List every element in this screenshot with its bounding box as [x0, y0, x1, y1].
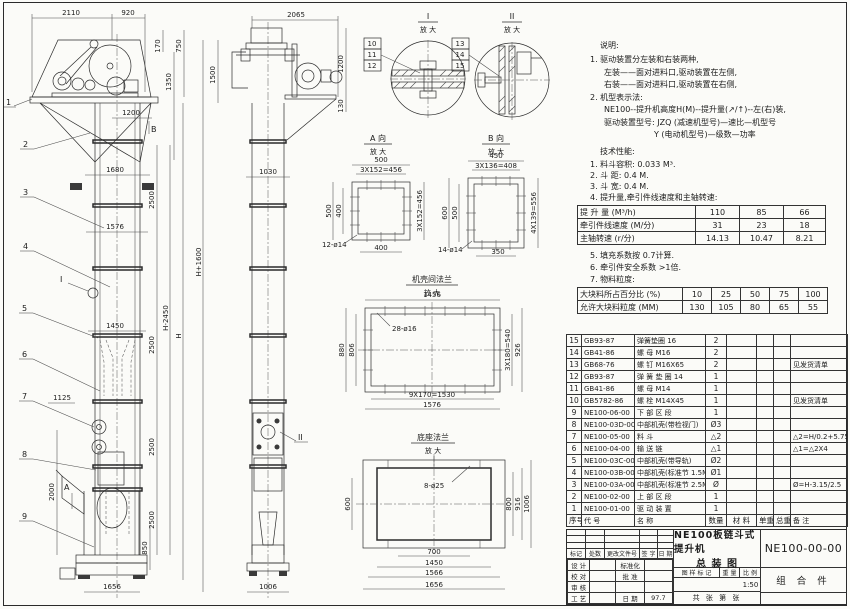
table-cell — [774, 419, 791, 431]
dim-1500: 1500 — [209, 66, 217, 84]
table-cell: 2 — [706, 347, 727, 359]
table-cell: 50 — [741, 288, 770, 301]
table-row: 提 升 量 (M³/h)1108566 — [578, 206, 826, 219]
table-cell — [727, 371, 757, 383]
dim-base-width: 1656 — [103, 583, 121, 591]
table-cell: 6 — [567, 443, 582, 455]
table-row: 序号代 号名 称数量材 料单重总重备 注 — [567, 515, 848, 527]
table-cell: 见发货清单 — [791, 395, 848, 407]
rev-col-mark: 标记 — [567, 549, 586, 558]
callout-9: 9 — [22, 512, 27, 521]
table-cell: 55 — [799, 301, 828, 314]
dim-section-1: 2500 — [148, 191, 156, 209]
view-a-dim-right: 3X152=456 — [416, 190, 424, 232]
table-cell: 名 称 — [635, 515, 706, 527]
title-block-right: NE100-00-00 组 合 件 — [761, 530, 846, 604]
scale-label: 比 例 — [740, 568, 760, 577]
table-cell: △2=H/0.2+5.75 — [791, 431, 848, 443]
detail-base-flange: 底座法兰 放 大 8-ø25 600 800 916 1006 700 1450… — [344, 432, 531, 589]
table-cell: 中部机壳(标准节 1.5M,1M) — [635, 467, 706, 479]
table-cell — [791, 335, 848, 347]
table-cell: 31 — [696, 219, 740, 232]
table-row: 12GB93-87弹 簧 垫 圈 141 — [567, 371, 848, 383]
table-cell: 65 — [770, 301, 799, 314]
rev-col-doc: 更改文件号 — [605, 549, 640, 558]
table-row: 13GB68-76螺 钉 M16X652见发货清单 — [567, 359, 848, 371]
tech-line: 1. 料斗容积: 0.033 M³. — [590, 159, 717, 170]
table-cell: NE100-05-00 — [582, 431, 635, 443]
casing-flange-dim-bottom2: 1576 — [423, 401, 441, 409]
table-row: 6NE100-04-00输 送 链△1△1=△2X4 — [567, 443, 848, 455]
table-cell: Ø3 — [706, 419, 727, 431]
table-cell — [774, 431, 791, 443]
table-cell: GB41-86 — [582, 347, 635, 359]
table-cell — [774, 359, 791, 371]
casing-flange-dim-bottom: 9X170=1530 — [409, 391, 455, 399]
dim-side-base-width: 1006 — [259, 583, 277, 591]
dim-flange1: 1680 — [106, 166, 124, 174]
note-line: 2. 机型表示法: — [590, 92, 786, 105]
rev-col-date: 日 期 — [658, 549, 673, 558]
table-cell: 批 准 — [616, 570, 644, 581]
base-flange-dim-bottom2: 1450 — [425, 559, 443, 567]
table-row: 工 艺日 期97.7 — [568, 592, 673, 603]
table-cell — [757, 347, 774, 359]
view-a-dim-top2: 3X152=456 — [360, 166, 402, 174]
table-cell — [727, 455, 757, 467]
table-cell: 中部机壳(带检视门) — [635, 419, 706, 431]
table-cell — [757, 491, 774, 503]
drawing-title: NE100板链斗式提升机 — [674, 527, 760, 555]
table-row: 大块料所占百分比 (%)10255075100 — [578, 288, 828, 301]
table-cell: 见发货清单 — [791, 359, 848, 371]
table-cell — [727, 479, 757, 491]
base-flange-dim-bottom4: 1656 — [425, 581, 443, 589]
table-cell — [757, 371, 774, 383]
table-row: 3NE100-03A-00中部机壳(标准节 2.5M)ØØ=H-3.15/2.5 — [567, 479, 848, 491]
table-cell: NE100-04-00 — [582, 443, 635, 455]
tech-line: 4. 提升量,牵引件线速度和主轴转速: — [590, 192, 717, 203]
table-cell: △2 — [706, 431, 727, 443]
table-row: 10GB5782-86螺 栓 M14X451见发货清单 — [567, 395, 848, 407]
dim-1350: 1350 — [165, 73, 173, 91]
table-cell — [644, 559, 672, 570]
table-cell: 1 — [706, 395, 727, 407]
table-cell: 中部机壳(带导轨) — [635, 455, 706, 467]
table-cell: △1=△2X4 — [791, 443, 848, 455]
base-flange-dim-right3: 1006 — [523, 495, 531, 513]
casing-flange-holes: 28-ø16 — [392, 325, 417, 333]
tech-line: 3. 斗 宽: 0.4 M. — [590, 181, 717, 192]
table-cell — [774, 371, 791, 383]
tech-line: 5. 填充系数按 0.7计算. — [590, 250, 681, 262]
table-cell — [791, 455, 848, 467]
table-cell: 25 — [712, 288, 741, 301]
table-row: 牵引件线速度 (M/分)312318 — [578, 219, 826, 232]
drawing-canvas: 2110 920 170 750 1350 1500 1200 1680 157… — [0, 0, 565, 609]
dim-mid-width: 1450 — [106, 322, 124, 330]
table-cell: Ø1 — [706, 467, 727, 479]
table-cell — [774, 443, 791, 455]
table-cell: 标准化 — [616, 559, 644, 570]
note-line: 右装——面对进料口,驱动装置在右侧, — [604, 79, 786, 92]
table-cell: 设 计 — [568, 559, 590, 570]
table-cell — [757, 443, 774, 455]
table-cell: 螺 钉 M16X65 — [635, 359, 706, 371]
table-cell: 1 — [706, 407, 727, 419]
dim-750: 750 — [175, 39, 183, 52]
view-mark-b: B — [151, 125, 157, 134]
view-b-dim-right: 4X139=556 — [530, 192, 538, 234]
dim-section-2: 2500 — [148, 336, 156, 354]
table-cell: 材 料 — [727, 515, 757, 527]
detail-mark-i: I — [60, 275, 62, 284]
table-cell — [757, 407, 774, 419]
table-cell: 80 — [741, 301, 770, 314]
dim-feed-height: 2000 — [48, 483, 56, 501]
detail-i-callout-11: 11 — [368, 51, 377, 59]
table-cell — [757, 467, 774, 479]
table-cell — [774, 395, 791, 407]
table-cell — [727, 431, 757, 443]
detail-ii-callout-14: 14 — [456, 51, 465, 59]
dim-side-1200: 1200 — [337, 55, 345, 73]
table-cell: NE100-03D-00 — [582, 419, 635, 431]
table-cell — [727, 335, 757, 347]
table-cell: 97.7 — [644, 592, 672, 603]
casing-flange-dim-left: 880 — [338, 343, 346, 356]
dim-170: 170 — [154, 39, 162, 52]
table-cell — [774, 407, 791, 419]
table-cell — [590, 592, 616, 603]
assembly-type: 组 合 件 — [761, 568, 846, 593]
casing-flange-dim-left2: 806 — [348, 343, 356, 357]
capacity-table: 提 升 量 (M³/h)1108566牵引件线速度 (M/分)312318主轴转… — [577, 205, 826, 245]
detail-ii-label: II — [510, 12, 515, 21]
dim-head-width: 2110 — [62, 9, 80, 17]
table-cell: 下 部 区 段 — [635, 407, 706, 419]
detail-i: I 放 大 10 11 12 — [364, 12, 466, 118]
table-cell — [727, 503, 757, 515]
table-cell: 1 — [706, 491, 727, 503]
table-cell: NE100-01-00 — [582, 503, 635, 515]
dim-h-overall: H+1600 — [195, 248, 203, 277]
table-cell: NE100-03C-00 — [582, 455, 635, 467]
base-flange-dim-left: 600 — [344, 497, 352, 510]
table-cell — [791, 407, 848, 419]
table-cell: 审 核 — [568, 581, 590, 592]
tech-line: 7. 物料粒度: — [590, 274, 681, 286]
table-cell — [791, 503, 848, 515]
table-cell: 1 — [706, 503, 727, 515]
table-cell — [727, 419, 757, 431]
table-cell — [727, 491, 757, 503]
table-cell: NE100-02-00 — [582, 491, 635, 503]
table-row: 15GB93-87弹簧垫圈 162 — [567, 335, 848, 347]
table-cell: 14.13 — [696, 232, 740, 245]
table-cell: 10.47 — [740, 232, 784, 245]
view-b-dim-left: 600 — [441, 206, 449, 219]
note-line: Y (电动机型号)—级数—功率 — [654, 129, 786, 142]
table-cell: 75 — [770, 288, 799, 301]
table-cell — [590, 581, 616, 592]
table-cell — [774, 383, 791, 395]
sheet-count: 共 张 第 张 — [674, 592, 760, 604]
table-cell: 上 部 区 段 — [635, 491, 706, 503]
drawing-number: NE100-00-00 — [761, 530, 846, 568]
title-block: 标记 处数 更改文件号 签 字 日 期 设 计标准化校 对批 准审 核工 艺日 … — [566, 529, 847, 605]
view-b-label: B 向 — [488, 133, 504, 143]
rev-col-count: 处数 — [586, 549, 605, 558]
table-row: 审 核 — [568, 581, 673, 592]
table-cell — [774, 491, 791, 503]
view-b-dim-left2: 500 — [451, 206, 459, 219]
table-cell — [727, 443, 757, 455]
dim-h-mid: H-2450 — [162, 305, 170, 331]
base-flange-label: 底座法兰 — [417, 432, 449, 442]
lump-size-table: 大块料所占百分比 (%)10255075100允许大块料粒度 (MM)13010… — [577, 287, 828, 314]
table-row: 4NE100-03B-00中部机壳(标准节 1.5M,1M)Ø1 — [567, 467, 848, 479]
table-cell: GB5782-86 — [582, 395, 635, 407]
table-cell: 总重 — [774, 515, 791, 527]
side-elevation-view: II 2065 1200 130 1030 1006 — [232, 11, 346, 598]
callout-3: 3 — [23, 188, 28, 197]
table-cell — [757, 359, 774, 371]
table-cell: GB41-86 — [582, 383, 635, 395]
dim-flange2: 1576 — [106, 223, 124, 231]
detail-mark-ii: II — [298, 433, 303, 442]
table-cell — [757, 455, 774, 467]
base-flange-holes: 8-ø25 — [424, 482, 444, 490]
table-cell: 130 — [683, 301, 712, 314]
view-a-dim-left: 500 — [325, 204, 333, 217]
table-cell: 85 — [740, 206, 784, 219]
table-cell: GB93-87 — [582, 371, 635, 383]
table-cell: 105 — [712, 301, 741, 314]
table-cell: 工 艺 — [568, 592, 590, 603]
table-cell — [774, 335, 791, 347]
table-cell: 料 斗 — [635, 431, 706, 443]
table-cell: 8.21 — [784, 232, 826, 245]
table-cell — [757, 335, 774, 347]
dim-feed-width: 1125 — [53, 394, 71, 402]
table-cell: 14 — [567, 347, 582, 359]
table-cell — [727, 467, 757, 479]
view-b-dim-top: 450 — [489, 152, 502, 160]
table-cell: 主轴转速 (r/分) — [578, 232, 696, 245]
table-cell: 4 — [567, 467, 582, 479]
table-cell — [791, 467, 848, 479]
view-a-label: A 向 — [370, 133, 386, 143]
table-cell: 13 — [567, 359, 582, 371]
table-cell: 螺 母 M14 — [635, 383, 706, 395]
title-block-revision: 标记 处数 更改文件号 签 字 日 期 设 计标准化校 对批 准审 核工 艺日 … — [567, 530, 674, 604]
rev-col-sign: 签 字 — [640, 549, 658, 558]
dim-side-head-width: 2065 — [287, 11, 305, 19]
scale-value: 1:50 — [741, 581, 760, 589]
table-cell — [590, 559, 616, 570]
note-line: 左装——面对进料口,驱动装置在左侧, — [604, 67, 786, 80]
casing-flange-dim-right: 3X180=540 — [504, 329, 512, 371]
view-a-dim-bottom: 400 — [374, 244, 387, 252]
tech-title: 技术性能: — [600, 146, 635, 159]
view-a-dim-left2: 400 — [335, 204, 343, 217]
dim-col-width: 1200 — [122, 109, 140, 117]
base-flange-sub: 放 大 — [425, 446, 441, 455]
table-row: 校 对批 准 — [568, 570, 673, 581]
table-cell: 10 — [683, 288, 712, 301]
table-row: 主轴转速 (r/分)14.1310.478.21 — [578, 232, 826, 245]
detail-view-b: B 向 放 大 450 3X136=408 600 500 4X139=556 … — [438, 133, 538, 256]
detail-ii-sub: 放 大 — [504, 25, 520, 34]
note-line: 1. 驱动装置分左装和右装两种, — [590, 54, 786, 67]
table-cell: Ø2 — [706, 455, 727, 467]
table-cell: 66 — [784, 206, 826, 219]
detail-ii: II 放 大 13 14 15 — [452, 12, 550, 120]
table-cell: NE100-03B-00 — [582, 467, 635, 479]
table-cell: Ø=H-3.15/2.5 — [791, 479, 848, 491]
base-flange-dim-bottom: 700 — [427, 548, 440, 556]
table-cell — [727, 395, 757, 407]
dim-head-offset: 920 — [121, 9, 134, 17]
note-line: NE100--提升机高度H(M)--提升量(↗/↑)--左(右)装, — [604, 104, 786, 117]
table-cell: 12 — [567, 371, 582, 383]
view-mark-a: A — [64, 483, 70, 492]
dim-section-3: 2500 — [148, 438, 156, 456]
table-cell: 提 升 量 (M³/h) — [578, 206, 696, 219]
table-cell: 15 — [567, 335, 582, 347]
table-cell: 校 对 — [568, 570, 590, 581]
table-cell: 1 — [706, 371, 727, 383]
dim-section-4: 2500 — [148, 511, 156, 529]
table-row: 14GB41-86螺 母 M162 — [567, 347, 848, 359]
table-cell: 7 — [567, 431, 582, 443]
table-cell: 数量 — [706, 515, 727, 527]
base-flange-dim-bottom3: 1566 — [425, 569, 443, 577]
detail-i-callout-10: 10 — [368, 40, 377, 48]
drawing-sheet: 2110 920 170 750 1350 1500 1200 1680 157… — [0, 0, 850, 609]
table-cell: 备 注 — [791, 515, 848, 527]
table-cell — [791, 371, 848, 383]
view-b-dim-bottom: 350 — [491, 248, 504, 256]
table-cell — [757, 431, 774, 443]
detail-view-a: A 向 放 大 500 3X152=456 500 400 3X152=456 … — [322, 133, 424, 252]
table-row: 9NE100-06-00下 部 区 段1 — [567, 407, 848, 419]
table-row: 7NE100-05-00料 斗△2△2=H/0.2+5.75 — [567, 431, 848, 443]
table-cell: 中部机壳(标准节 2.5M) — [635, 479, 706, 491]
casing-flange-label: 机壳间法兰 — [412, 274, 452, 284]
table-cell: 大块料所占百分比 (%) — [578, 288, 683, 301]
weight-label: 重 量 — [720, 568, 740, 577]
callout-7: 7 — [22, 392, 27, 401]
table-cell: 1 — [567, 503, 582, 515]
title-block-roles: 设 计标准化校 对批 准审 核工 艺日 期97.7 — [567, 559, 673, 604]
table-cell — [727, 383, 757, 395]
table-cell — [774, 467, 791, 479]
table-cell: 2 — [706, 359, 727, 371]
table-cell: 11 — [567, 383, 582, 395]
tech-line: 6. 牵引件安全系数 >1倍. — [590, 262, 681, 274]
table-cell — [774, 455, 791, 467]
table-cell: 5 — [567, 455, 582, 467]
table-cell — [616, 581, 644, 592]
table-row: 11GB41-86螺 母 M141 — [567, 383, 848, 395]
table-cell: GB68-76 — [582, 359, 635, 371]
front-elevation-view: 2110 920 170 750 1350 1500 1200 1680 157… — [4, 9, 218, 598]
table-cell: Ø — [706, 479, 727, 491]
detail-i-callout-12: 12 — [368, 62, 377, 70]
view-a-dim-top: 500 — [374, 156, 387, 164]
table-cell — [774, 347, 791, 359]
table-row: 允许大块料粒度 (MM)130105806555 — [578, 301, 828, 314]
table-cell: 23 — [740, 219, 784, 232]
view-a-holes: 12-ø14 — [322, 241, 347, 249]
table-cell: 弹簧垫圈 16 — [635, 335, 706, 347]
table-cell — [644, 570, 672, 581]
table-cell — [757, 503, 774, 515]
tech-line: 2. 斗 距: 0.4 M. — [590, 170, 717, 181]
detail-ii-callout-13: 13 — [456, 40, 465, 48]
note-line: 驱动装置型号: JZQ (减速机型号)—速比—机型号 — [604, 117, 786, 130]
casing-flange-dim-top: 1456 — [423, 291, 441, 299]
table-cell: △1 — [706, 443, 727, 455]
table-cell: 100 — [799, 288, 828, 301]
table-cell: 允许大块料粒度 (MM) — [578, 301, 683, 314]
callout-2: 2 — [23, 140, 28, 149]
table-cell — [774, 503, 791, 515]
table-cell: 输 送 链 — [635, 443, 706, 455]
view-b-holes: 14-ø14 — [438, 246, 463, 254]
table-cell — [644, 581, 672, 592]
notes-title: 说明: — [600, 40, 619, 53]
view-a-sub: 放 大 — [370, 147, 386, 156]
detail-i-label: I — [427, 12, 429, 21]
dim-base-height: 850 — [141, 541, 149, 554]
table-cell: 2 — [567, 491, 582, 503]
detail-ii-callout-15: 15 — [456, 62, 465, 70]
table-cell: 牵引件线速度 (M/分) — [578, 219, 696, 232]
table-cell — [757, 419, 774, 431]
table-cell — [727, 359, 757, 371]
dim-side-col-width: 1030 — [259, 168, 277, 176]
table-cell — [757, 479, 774, 491]
table-cell — [791, 347, 848, 359]
table-cell — [727, 407, 757, 419]
table-cell: 弹 簧 垫 圈 14 — [635, 371, 706, 383]
table-cell: 110 — [696, 206, 740, 219]
casing-flange-dim-right2: 926 — [514, 343, 522, 357]
callout-6: 6 — [22, 350, 27, 359]
mark-label: 图 样 标 记 — [674, 568, 720, 577]
table-row: 8NE100-03D-00中部机壳(带检视门)Ø3 — [567, 419, 848, 431]
table-cell: 1 — [706, 383, 727, 395]
table-row: 5NE100-03C-00中部机壳(带导轨)Ø2 — [567, 455, 848, 467]
table-cell — [727, 347, 757, 359]
detail-casing-flange: 机壳间法兰 放 大 1456 28-ø16 880 806 3X180=540 — [338, 274, 522, 409]
table-cell — [774, 479, 791, 491]
dim-side-130: 130 — [337, 99, 345, 112]
callout-5: 5 — [22, 304, 27, 313]
table-cell: NE100-06-00 — [582, 407, 635, 419]
table-cell: 单重 — [757, 515, 774, 527]
table-cell: 螺 母 M16 — [635, 347, 706, 359]
dim-h: H — [175, 333, 183, 338]
table-cell — [757, 395, 774, 407]
table-cell: 10 — [567, 395, 582, 407]
table-cell: 螺 栓 M14X45 — [635, 395, 706, 407]
callout-1: 1 — [6, 98, 11, 107]
table-cell — [757, 383, 774, 395]
